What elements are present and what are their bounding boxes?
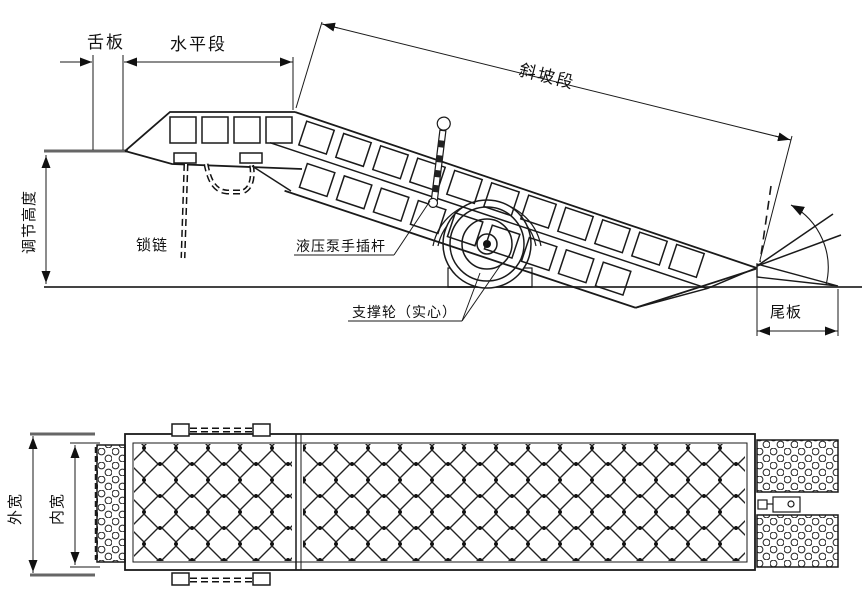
- label-pump-rod: 液压泵手插杆: [296, 238, 386, 254]
- plan-tail-plates: [757, 440, 838, 567]
- label-lock-chain: 锁链: [136, 237, 168, 254]
- tail-plate: [757, 186, 841, 286]
- drawing-sheet: 舌板 水平段 斜坡段 调节高度 锁链 液压泵手插杆 支撑轮（实心） 尾板: [0, 0, 865, 594]
- support-wheel: [433, 200, 541, 288]
- label-horizontal-section: 水平段: [170, 35, 227, 54]
- top-view: [30, 424, 838, 585]
- truss-brace: [252, 166, 291, 191]
- tread-slope-section: [303, 444, 745, 561]
- horizontal-platform: [125, 112, 302, 169]
- side-view: [44, 22, 862, 340]
- tail-latch: [758, 497, 800, 512]
- label-inner-width: 内宽: [49, 493, 66, 525]
- label-outer-width: 外宽: [7, 493, 24, 525]
- label-adjust-height: 调节高度: [21, 190, 38, 254]
- tail-rotation-arc: [791, 205, 828, 285]
- lock-chains: [174, 153, 262, 258]
- tread-horizontal-section: [134, 444, 292, 561]
- label-support-wheel: 支撑轮（实心）: [352, 304, 457, 320]
- label-tongue-plate: 舌板: [87, 33, 125, 52]
- plan-tongue-plate: [96, 445, 125, 562]
- label-slope-section: 斜坡段: [517, 60, 577, 92]
- dock-ramp-technical-drawing: 舌板 水平段 斜坡段 调节高度 锁链 液压泵手插杆 支撑轮（实心） 尾板: [0, 0, 865, 594]
- label-tail-plate: 尾板: [770, 303, 802, 321]
